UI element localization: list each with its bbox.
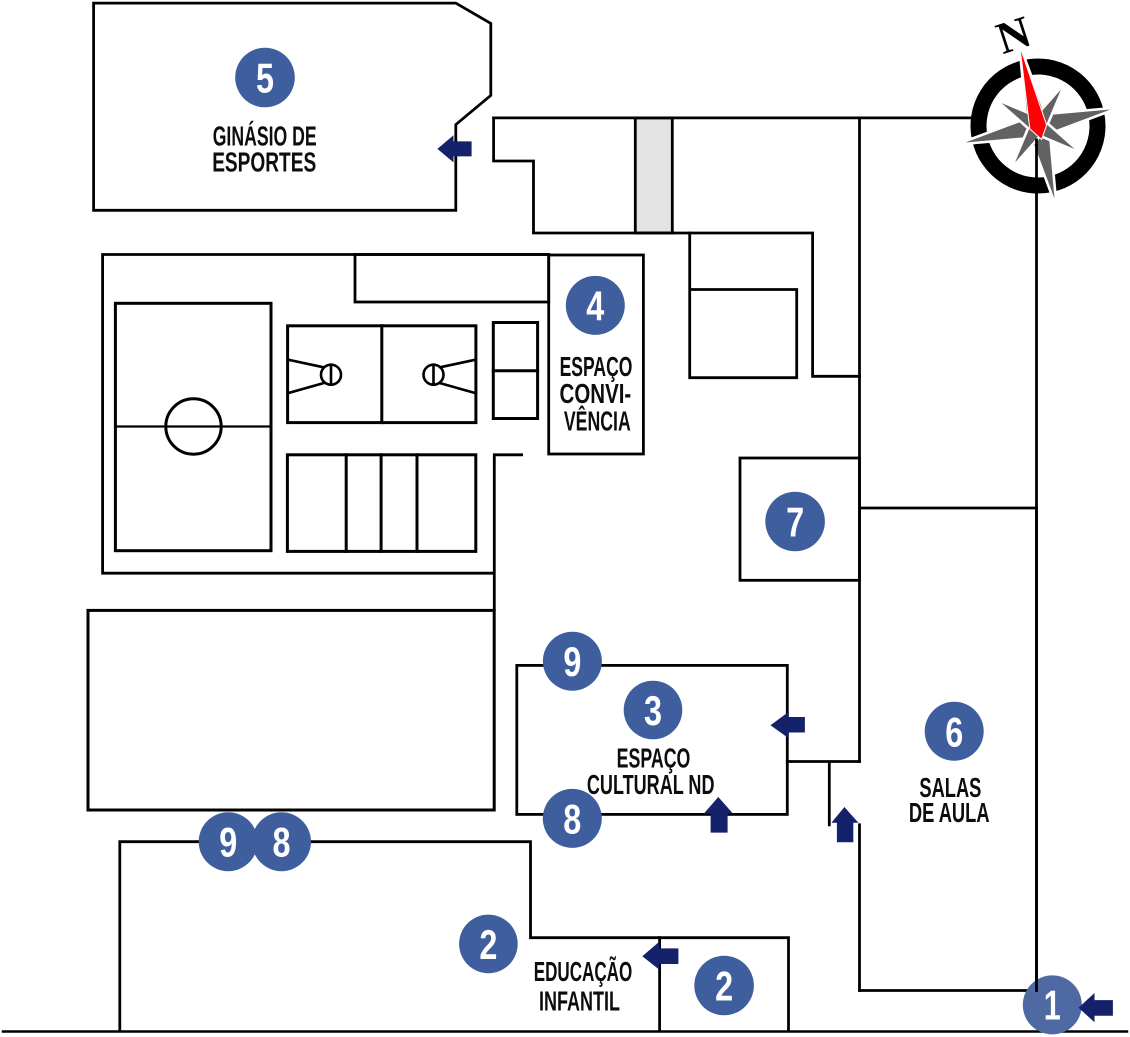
svg-text:7: 7: [786, 499, 804, 546]
svg-text:9: 9: [219, 819, 237, 866]
svg-text:8: 8: [563, 795, 581, 842]
svg-text:INFANTIL: INFANTIL: [539, 986, 620, 1017]
svg-text:VÊNCIA: VÊNCIA: [564, 405, 631, 436]
svg-text:4: 4: [586, 282, 604, 329]
svg-text:CULTURAL ND: CULTURAL ND: [587, 769, 715, 800]
svg-text:2: 2: [479, 921, 497, 968]
svg-text:3: 3: [644, 687, 662, 734]
svg-text:ESPORTES: ESPORTES: [212, 146, 316, 177]
svg-text:2: 2: [715, 963, 733, 1010]
svg-text:EDUCAÇÃO: EDUCAÇÃO: [534, 956, 633, 987]
svg-text:9: 9: [563, 638, 581, 685]
svg-text:DE AULA: DE AULA: [909, 797, 990, 828]
svg-text:8: 8: [273, 819, 291, 866]
svg-text:5: 5: [256, 55, 274, 102]
svg-text:6: 6: [945, 708, 963, 755]
svg-text:1: 1: [1044, 982, 1061, 1029]
